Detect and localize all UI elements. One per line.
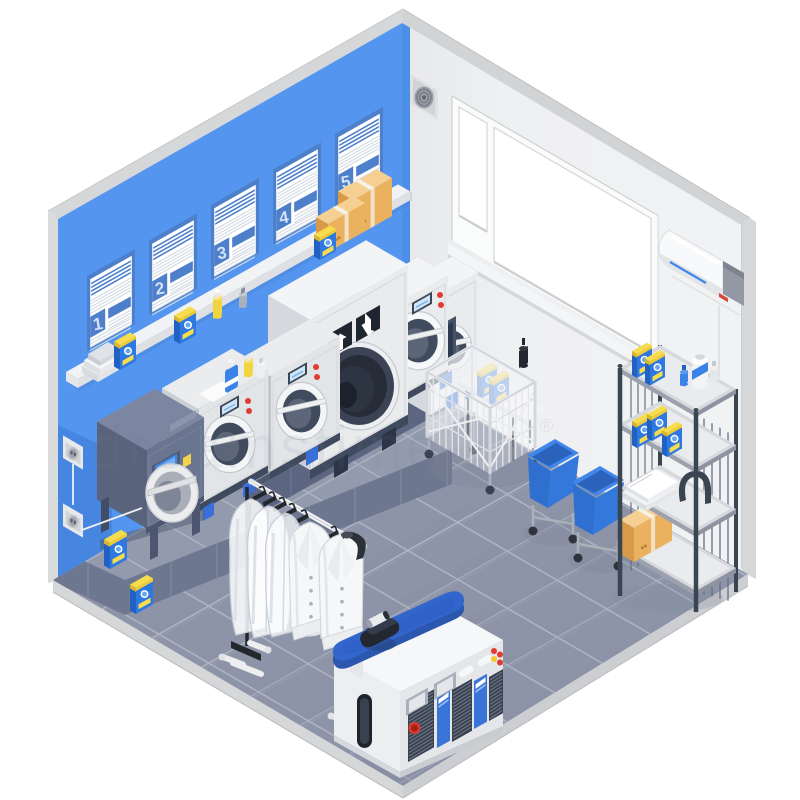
svg-text:dreamstime: dreamstime (90, 414, 443, 481)
svg-text:®: ® (540, 416, 553, 436)
